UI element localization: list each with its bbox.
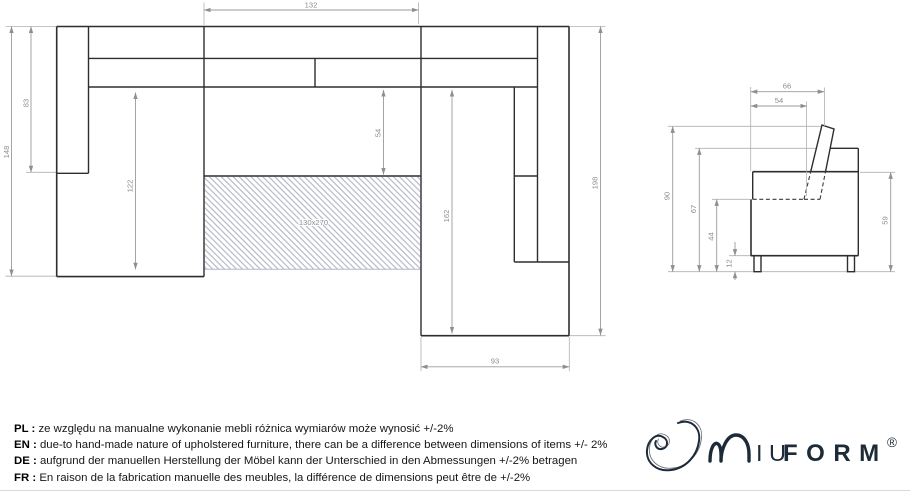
dim-label-side-height: 59 bbox=[881, 216, 890, 224]
bottom-divider bbox=[0, 490, 910, 491]
brand-m-wave bbox=[710, 435, 749, 461]
note-en-label: EN : bbox=[14, 439, 37, 451]
dim-label-right-total-height: 198 bbox=[591, 177, 600, 190]
dim-label-seat-height: 44 bbox=[707, 232, 716, 240]
dim-label-top-width: 132 bbox=[305, 1, 318, 10]
note-fr-text: En raison de la fabrication manuelle des… bbox=[39, 472, 530, 484]
dim-label-chaise-width: 93 bbox=[491, 357, 499, 366]
note-pl-label: PL : bbox=[14, 423, 35, 435]
note-de: DE : aufgrund der manuellen Herstellung … bbox=[14, 453, 634, 469]
dim-label-top-depth: 66 bbox=[783, 82, 791, 91]
dim-label-seat-depth-top: 54 bbox=[775, 96, 783, 105]
dim-label-mid-seat-depth: 54 bbox=[374, 129, 383, 137]
dim-label-leg-height: 12 bbox=[725, 259, 734, 267]
dim-label-back-height: 67 bbox=[689, 205, 698, 213]
note-de-label: DE : bbox=[14, 455, 37, 467]
note-pl-text: ze względu na manualne wykonanie mebli r… bbox=[38, 423, 453, 435]
note-de-text: aufgrund der manuellen Herstellung der M… bbox=[40, 455, 577, 467]
side-view-extension-lines bbox=[668, 87, 895, 272]
top-view-drawing: 132 148 83 122 54 162 198 93 130x270 bbox=[0, 0, 620, 380]
note-fr-label: FR : bbox=[14, 472, 36, 484]
brand-form: FORM bbox=[783, 440, 888, 467]
note-fr: FR : En raison de la fabrication manuell… bbox=[14, 470, 634, 486]
side-view-drawing: 66 54 90 67 44 12 59 bbox=[640, 80, 906, 280]
dim-label-left-arm-length: 83 bbox=[22, 99, 31, 107]
sleeping-area-label: 130x270 bbox=[299, 218, 328, 227]
dim-label-left-total-height: 148 bbox=[2, 146, 11, 159]
bean-icon bbox=[647, 420, 702, 471]
headrest-hidden-edges bbox=[804, 172, 826, 200]
miuform-logo: IU FORM ® bbox=[642, 413, 904, 483]
note-pl: PL : ze względu na manualne wykonanie me… bbox=[14, 421, 634, 437]
front-leg bbox=[754, 256, 761, 272]
sofa-side-profile bbox=[751, 125, 859, 272]
dim-label-chaise-inner-length: 162 bbox=[442, 210, 451, 223]
back-leg bbox=[848, 256, 855, 272]
tolerance-notes: PL : ze względu na manualne wykonanie me… bbox=[14, 421, 634, 486]
dim-label-total-height: 90 bbox=[663, 192, 672, 200]
spec-sheet: 132 148 83 122 54 162 198 93 130x270 bbox=[0, 0, 910, 500]
dim-label-left-seat-depth: 122 bbox=[126, 180, 135, 193]
registered-mark: ® bbox=[887, 435, 897, 450]
note-en: EN : due-to hand-made nature of upholste… bbox=[14, 437, 634, 453]
note-en-text: due-to hand-made nature of upholstered f… bbox=[40, 439, 607, 451]
